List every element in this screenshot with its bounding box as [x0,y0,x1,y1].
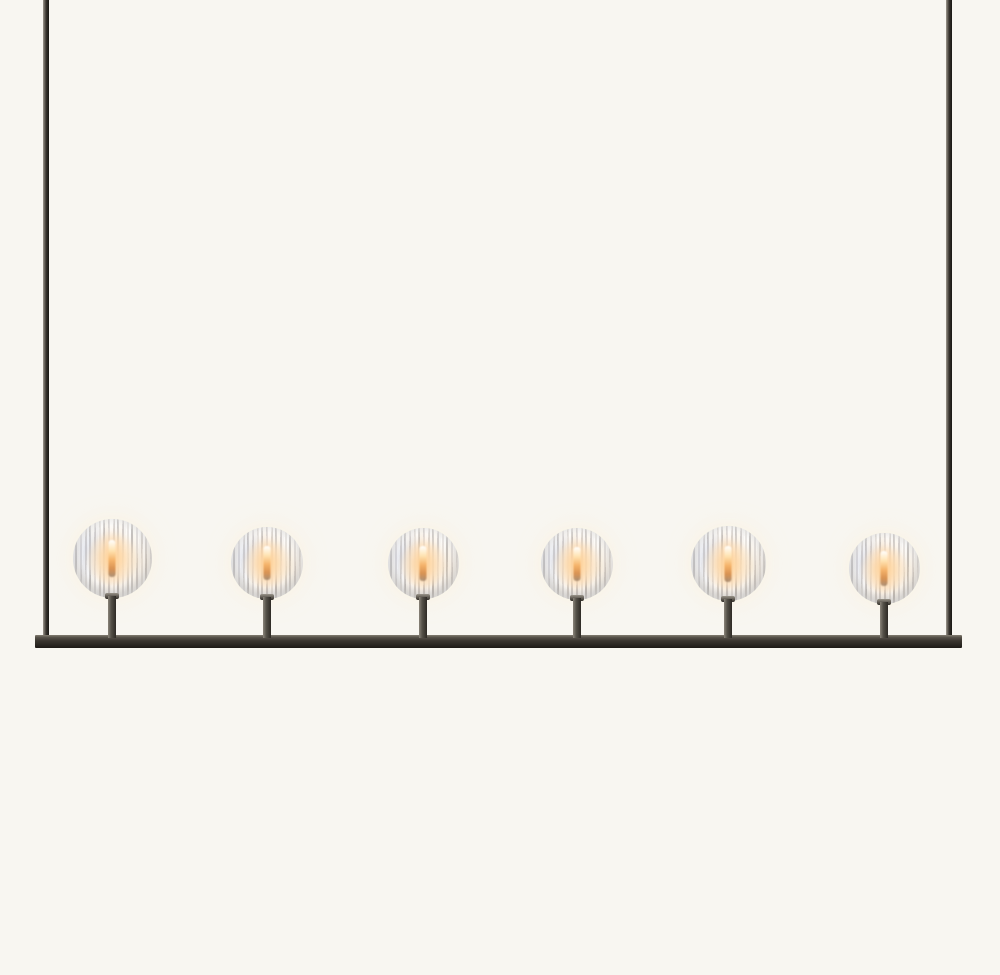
bulb-glow [858,543,909,594]
lights-layer [0,0,1000,975]
stem [108,596,116,638]
bulb-glow [397,538,448,589]
stem [724,599,732,638]
light-arm [0,0,1000,975]
bulb-filament [725,546,732,582]
crystal-ball [73,519,152,598]
socket-collar [570,595,584,601]
crystal-ball [541,528,613,600]
socket-collar [416,594,430,600]
socket-collar [260,594,274,600]
bulb-glow [701,537,755,591]
stem [573,598,581,638]
light-arm [0,0,1000,975]
crystal-ball [388,528,459,599]
bulb-glow [241,537,293,589]
bulb-filament [881,551,888,585]
bulb-filament [574,547,581,582]
bulb-glow [551,538,603,590]
crystal-ball [691,526,766,601]
socket-collar [721,596,735,602]
stem [263,597,271,638]
crystal-ball [231,527,303,599]
socket-collar [105,593,119,599]
stem [880,602,888,638]
socket-collar [877,599,891,605]
stem [419,597,427,638]
light-arm [0,0,1000,975]
crystal-ball [849,533,920,604]
light-arm [0,0,1000,975]
bulb-filament [109,540,116,578]
bulb-filament [420,546,427,580]
bulb-glow [84,530,141,587]
bulb-filament [264,546,271,581]
light-arm [0,0,1000,975]
chandelier-photo [0,0,1000,975]
light-arm [0,0,1000,975]
